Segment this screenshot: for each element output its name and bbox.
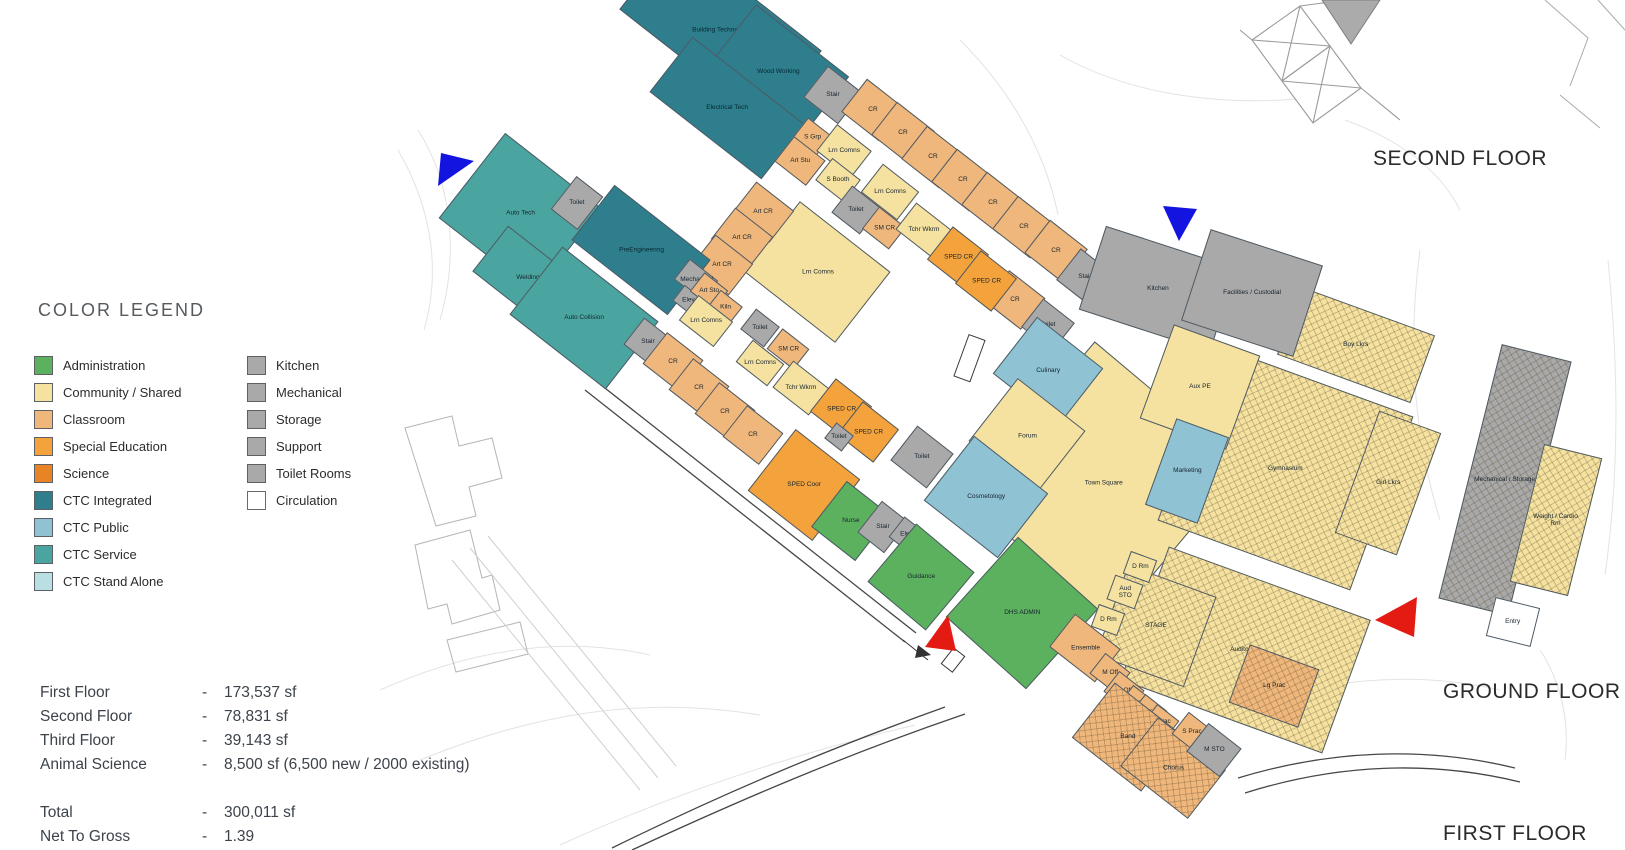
- room-label: Nurse: [842, 517, 859, 524]
- legend-label: CTC Service: [63, 547, 137, 562]
- stat-row-third-floor: Third Floor-39,143 sf: [40, 732, 288, 750]
- room-label: Art CR: [712, 261, 732, 268]
- legend-item-classroom: Classroom: [34, 409, 125, 429]
- legend-label: Science: [63, 466, 109, 481]
- legend-swatch: [247, 437, 266, 456]
- room-label: Art Sto: [699, 287, 719, 294]
- legend-label: Circulation: [276, 493, 337, 508]
- room-label: Lg Prac: [1263, 682, 1285, 689]
- room-label: CR: [720, 408, 729, 415]
- room-label: Tchr Wkrm: [785, 384, 816, 391]
- room-label: Toilet: [569, 199, 584, 206]
- room-label: Boy Lkrs: [1343, 341, 1368, 348]
- room-label: Lrn Comns: [744, 359, 776, 366]
- legend-item-community-shared: Community / Shared: [34, 382, 182, 402]
- legend-label: Mechanical: [276, 385, 342, 400]
- legend-swatch: [247, 410, 266, 429]
- room-label: Kitchen: [1147, 285, 1169, 292]
- stat-label: Net To Gross: [40, 828, 202, 846]
- legend-label: Community / Shared: [63, 385, 182, 400]
- legend-item-special-education: Special Education: [34, 436, 167, 456]
- room-label: D Rm: [1132, 563, 1149, 570]
- room-label: Weight / Cardio Rm: [1528, 513, 1583, 528]
- first-floor-label: FIRST FLOOR: [1443, 822, 1587, 846]
- room-label: Toilet: [914, 453, 929, 460]
- room-label: Stair: [641, 338, 654, 345]
- room-label: Toilet: [831, 433, 846, 440]
- legend-swatch: [247, 356, 266, 375]
- stat-row-second-floor: Second Floor-78,831 sf: [40, 708, 288, 726]
- legend-swatch: [34, 410, 53, 429]
- room-label: SPED CR: [827, 405, 856, 412]
- room-label: CR: [898, 129, 907, 136]
- stat-label: First Floor: [40, 684, 202, 702]
- room-label: CR: [928, 153, 937, 160]
- legend-item-ctc-integrated: CTC Integrated: [34, 490, 152, 510]
- stat-dash: -: [202, 828, 224, 846]
- legend-swatch: [34, 383, 53, 402]
- room-label: CR: [694, 384, 703, 391]
- room-label: Guidance: [907, 573, 935, 580]
- room-label: SPED CR: [854, 428, 883, 435]
- legend-item-kitchen: Kitchen: [247, 355, 319, 375]
- room-label: Tchr Wkrm: [908, 226, 939, 233]
- room-label: PreEngineering: [619, 246, 664, 253]
- room-label: Town Square: [1084, 478, 1122, 485]
- room-label: Cosmetology: [967, 493, 1005, 500]
- room-label: Stair: [826, 91, 839, 98]
- stat-label: Third Floor: [40, 732, 202, 750]
- room-label: Marketing: [1173, 467, 1202, 474]
- legend-label: CTC Integrated: [63, 493, 152, 508]
- room-label: Facilities / Custodial: [1223, 289, 1281, 296]
- room-label: CR: [1019, 223, 1028, 230]
- stat-dash: -: [202, 804, 224, 822]
- room-label: SPED CR: [972, 277, 1001, 284]
- legend-item-science: Science: [34, 463, 109, 483]
- stat-row-net-to-gross: Net To Gross-1.39: [40, 828, 254, 846]
- room-label: Ensemble: [1071, 644, 1100, 651]
- legend-item-circulation: Circulation: [247, 490, 337, 510]
- legend-item-administration: Administration: [34, 355, 145, 375]
- legend-label: Support: [276, 439, 322, 454]
- stat-value: 173,537 sf: [224, 684, 296, 702]
- legend-title: COLOR LEGEND: [38, 300, 205, 321]
- legend-item-toilet-rooms: Toilet Rooms: [247, 463, 351, 483]
- room-label: Auto Tech: [506, 209, 535, 216]
- legend-label: CTC Stand Alone: [63, 574, 163, 589]
- room-label: Girl Lkrs: [1376, 479, 1400, 486]
- stat-label: Animal Science: [40, 756, 202, 774]
- legend-swatch: [247, 464, 266, 483]
- room-label: Lrn Comns: [874, 188, 906, 195]
- room-label: S Booth: [826, 176, 849, 183]
- legend-item-support: Support: [247, 436, 322, 456]
- room-label: CR: [668, 358, 677, 365]
- legend-item-storage: Storage: [247, 409, 322, 429]
- legend-item-ctc-public: CTC Public: [34, 517, 129, 537]
- stat-value: 78,831 sf: [224, 708, 288, 726]
- room-label: Lrn Comns: [828, 147, 860, 154]
- stat-value: 39,143 sf: [224, 732, 288, 750]
- room-label: CR: [1051, 247, 1060, 254]
- room-label: SM CR: [778, 345, 799, 352]
- room-label: Art CR: [732, 234, 752, 241]
- legend-swatch: [247, 491, 266, 510]
- room-label: Band: [1120, 733, 1135, 740]
- stat-value: 8,500 sf (6,500 new / 2000 existing): [224, 756, 470, 774]
- room-label: STAGE: [1145, 622, 1167, 629]
- stat-value: 300,011 sf: [224, 804, 295, 822]
- legend-swatch: [34, 572, 53, 591]
- stat-dash: -: [202, 732, 224, 750]
- room-label: DHS ADMIN: [1004, 609, 1040, 616]
- ground-floor-label: GROUND FLOOR: [1443, 680, 1621, 704]
- legend-label: Special Education: [63, 439, 167, 454]
- room-label: Lrn Comns: [690, 317, 722, 324]
- room-label: Forum: [1018, 432, 1037, 439]
- legend-label: Administration: [63, 358, 145, 373]
- room-label: CR: [1010, 296, 1019, 303]
- legend-swatch: [34, 518, 53, 537]
- legend-swatch: [247, 383, 266, 402]
- room-label: D Rm: [1100, 616, 1117, 623]
- stat-row-total: Total-300,011 sf: [40, 804, 295, 822]
- stat-value: 1.39: [224, 828, 254, 846]
- stat-label: Total: [40, 804, 202, 822]
- room-label: SPED CR: [944, 253, 973, 260]
- room-label: M STO: [1204, 746, 1224, 753]
- room-label: Electrical Tech: [706, 104, 748, 111]
- legend-item-ctc-service: CTC Service: [34, 544, 137, 564]
- room-label: Toilet: [848, 206, 863, 213]
- room-label: Wood Working: [757, 68, 799, 75]
- second-floor-label: SECOND FLOOR: [1373, 147, 1547, 171]
- room-label: CR: [988, 199, 997, 206]
- room-label: Auto Collision: [564, 314, 604, 321]
- legend-label: Toilet Rooms: [276, 466, 351, 481]
- stat-label: Second Floor: [40, 708, 202, 726]
- floor-plan-canvas: Building TechnologyWood WorkingElectrica…: [0, 0, 1625, 850]
- legend-label: Classroom: [63, 412, 125, 427]
- room-label: CR: [958, 176, 967, 183]
- room-label: Culinary: [1036, 367, 1060, 374]
- stat-dash: -: [202, 684, 224, 702]
- stat-row-animal-science: Animal Science-8,500 sf (6,500 new / 200…: [40, 756, 470, 774]
- legend-item-ctc-stand-alone: CTC Stand Alone: [34, 571, 163, 591]
- room-label: S Grp: [804, 133, 821, 140]
- room-label: Entry: [1505, 618, 1520, 625]
- room-label: Stair: [876, 523, 889, 530]
- legend-label: CTC Public: [63, 520, 129, 535]
- room-label: Art CR: [753, 208, 773, 215]
- room-label: CR: [748, 431, 757, 438]
- legend-label: Kitchen: [276, 358, 319, 373]
- room-label: SM CR: [874, 224, 895, 231]
- room-label: CR: [868, 106, 877, 113]
- legend-label: Storage: [276, 412, 322, 427]
- stat-dash: -: [202, 708, 224, 726]
- room-label: Mechanical / Storage: [1474, 476, 1535, 483]
- legend-swatch: [34, 356, 53, 375]
- room-label: Lrn Comns: [801, 268, 833, 275]
- room-entry: Entry: [1486, 597, 1540, 647]
- legend-swatch: [34, 545, 53, 564]
- room-label: Art Stu: [790, 157, 810, 164]
- legend-item-mechanical: Mechanical: [247, 382, 342, 402]
- room-label: Toilet: [752, 324, 767, 331]
- legend-swatch: [34, 464, 53, 483]
- stat-row-first-floor: First Floor-173,537 sf: [40, 684, 296, 702]
- stat-dash: -: [202, 756, 224, 774]
- room-label: Aux PE: [1189, 383, 1211, 390]
- room-label: Aud STO: [1112, 585, 1139, 600]
- legend-swatch: [34, 437, 53, 456]
- room-label: Kiln: [720, 303, 731, 310]
- room-label: Gymnasium: [1268, 464, 1303, 471]
- room-label: Chorus: [1163, 764, 1184, 771]
- room-label: SPED Coor: [787, 481, 821, 488]
- legend-swatch: [34, 491, 53, 510]
